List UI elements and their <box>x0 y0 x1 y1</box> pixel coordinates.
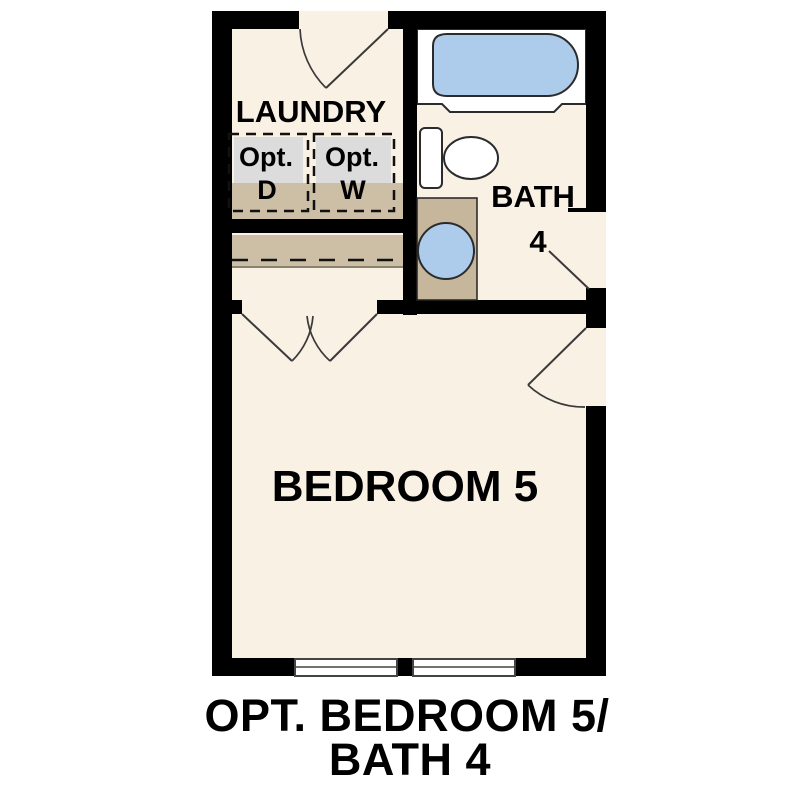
bath-room-label: BATH <box>491 179 575 214</box>
dryer-opt-label: Opt. <box>239 142 293 172</box>
floorplan-page: LAUNDRY Opt. D Opt. W BATH 4 BEDROOM 5 O… <box>0 0 810 810</box>
closet-shelf <box>232 235 403 266</box>
bathtub <box>433 34 578 96</box>
bedroom-room-label: BEDROOM 5 <box>272 462 538 511</box>
dryer-letter-label: D <box>257 175 277 205</box>
window-right <box>413 659 515 676</box>
laundry-room-label: LAUNDRY <box>236 94 387 129</box>
bath-room-number: 4 <box>529 224 547 259</box>
toilet-tank <box>420 128 442 188</box>
plan-caption-line2: BATH 4 <box>329 734 491 785</box>
toilet-bowl <box>444 137 498 179</box>
floorplan-drawing: LAUNDRY Opt. D Opt. W BATH 4 BEDROOM 5 O… <box>0 0 810 810</box>
window-left <box>295 659 397 676</box>
washer-opt-label: Opt. <box>325 142 379 172</box>
sink-basin <box>418 223 474 279</box>
washer-letter-label: W <box>340 175 366 205</box>
